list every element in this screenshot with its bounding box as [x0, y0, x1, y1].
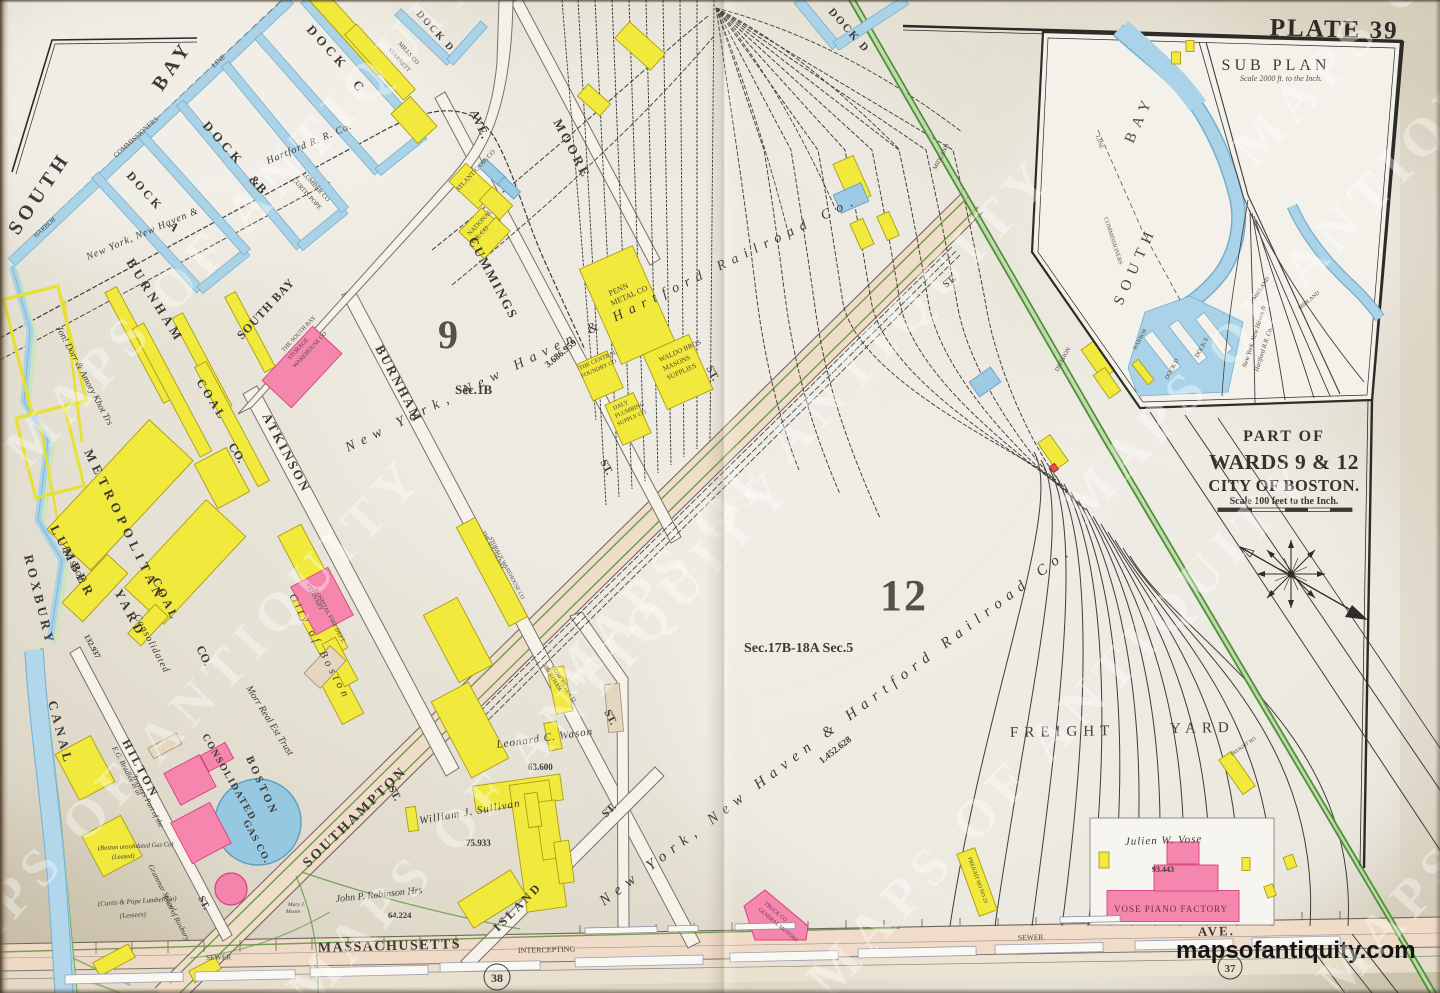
svg-text:PART OF: PART OF: [1243, 428, 1325, 445]
svg-text:12: 12: [880, 571, 928, 620]
svg-text:Sec.17B-18A Sec.5: Sec.17B-18A Sec.5: [744, 641, 853, 656]
svg-text:VOSE PIANO FACTORY: VOSE PIANO FACTORY: [1114, 904, 1228, 914]
svg-text:Moore: Moore: [285, 909, 301, 915]
svg-text:38: 38: [491, 971, 503, 985]
svg-text:SEWER: SEWER: [206, 952, 232, 962]
svg-text:9: 9: [438, 312, 458, 357]
svg-text:37: 37: [1225, 963, 1237, 975]
svg-text:(Leased): (Leased): [112, 853, 135, 861]
svg-text:INTERCEPTING: INTERCEPTING: [518, 944, 576, 955]
svg-text:YARD: YARD: [1170, 720, 1235, 737]
svg-text:93.443: 93.443: [1152, 865, 1174, 874]
svg-text:Mary J.: Mary J.: [287, 902, 305, 908]
svg-text:SEWER: SEWER: [1018, 932, 1044, 942]
